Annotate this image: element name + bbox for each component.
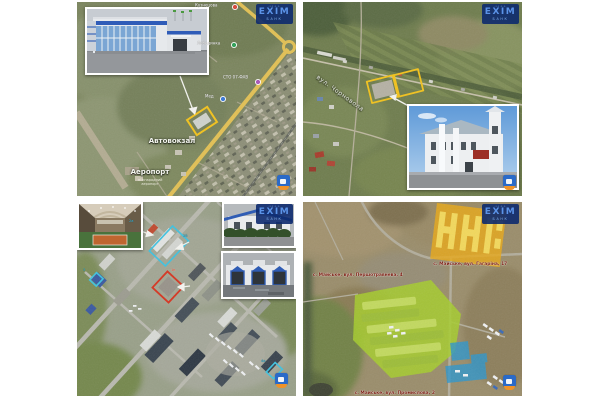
address-label-green-zone: с. Майське, вул. Першотравнева, 4 [311, 272, 405, 277]
exim-logo-watermark: ·ı·ı·ı·ı· ЕХІМ БАНК [256, 204, 293, 224]
object-mark: 4а [261, 359, 266, 363]
badge-base-icon [504, 186, 515, 190]
map-collage-page: Кузнецова Лебединка СТО 07-ФАВ Мед Автов… [0, 0, 600, 400]
service-station-photo [223, 253, 294, 297]
sports-hall-photo [79, 204, 141, 248]
airport-note: міжнародний аеропорт [115, 178, 185, 186]
badge-base-icon [276, 384, 287, 388]
poi-label: Мед [205, 94, 214, 99]
exim-logo-watermark: ·ı·ı·ı·ı· ЕХІМ БАНК [482, 4, 519, 24]
satellite-panel-industrial-zone[interactable]: 2а 2б 1в 3 4а ·ı·ı·ı·ı· ЕХІМ БАНК [77, 202, 296, 396]
badge-base-icon [278, 186, 289, 190]
satellite-panel-maiske-village[interactable]: с. Майське, вул. Гагаріна, 17 с. Майське… [303, 202, 522, 396]
object-mark: 2а [129, 219, 134, 223]
object-mark: 3 [83, 268, 85, 272]
exim-logo-watermark: ·ı·ı·ı·ı· ЕХІМ БАНК [256, 4, 293, 24]
map-service-badge [502, 175, 516, 190]
address-label-yellow-zone: с. Майське, вул. Гагаріна, 17 [429, 261, 512, 266]
satellite-panel-bus-station[interactable]: Кузнецова Лебединка СТО 07-ФАВ Мед Автов… [77, 2, 296, 196]
poi-label: Лебединка [197, 41, 220, 46]
photo-inset-bus-station-building[interactable] [85, 7, 209, 75]
photo-inset-sports-hall[interactable] [77, 202, 143, 250]
map-service-badge [502, 375, 516, 390]
white-building-photo [409, 106, 517, 188]
badge-base-icon [504, 386, 515, 390]
exim-logo-watermark: ·ı·ı·ı·ı· ЕХІМ БАНК [482, 204, 519, 224]
airport-label: Аеропорт [115, 168, 185, 176]
address-label-blue-zone: с. Майське, вул. Промислова, 2 [348, 390, 442, 395]
object-mark: 2б [183, 234, 188, 238]
satellite-panel-chornovola-street[interactable]: вул. Чорновола [303, 2, 522, 196]
map-service-badge [276, 175, 290, 190]
object-mark: 1в [171, 268, 175, 272]
bus-station-photo [87, 9, 207, 73]
exim-logo-subtext: БАНК [264, 18, 284, 20]
map-service-badge [274, 373, 288, 388]
bus-station-label: Автовокзал [132, 137, 212, 145]
photo-inset-service-station[interactable] [221, 251, 296, 299]
satellite-map-maiske [303, 202, 522, 396]
poi-label: СТО 07-ФАВ [223, 75, 248, 80]
exim-logo-topline: ·ı·ı·ı·ı· [265, 5, 284, 7]
exim-logo-text: ЕХІМ [256, 8, 293, 17]
poi-label: Кузнецова [195, 3, 217, 8]
